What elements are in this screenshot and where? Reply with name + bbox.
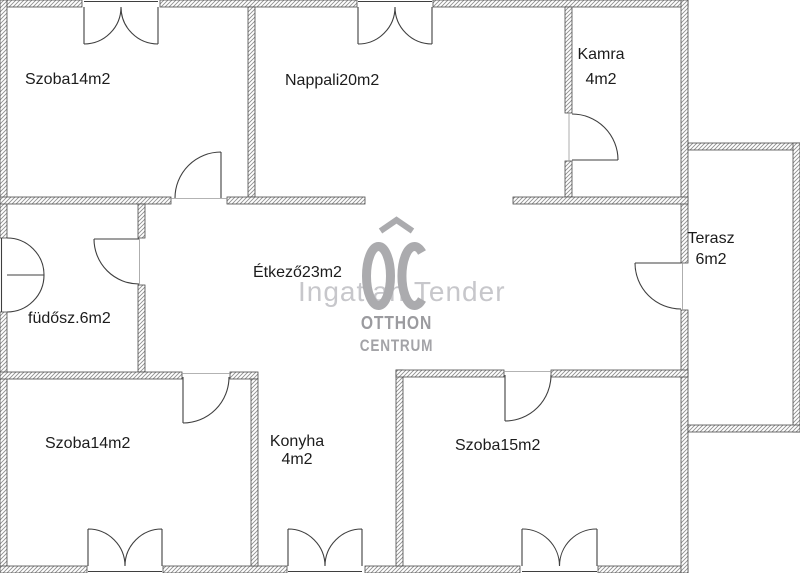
room-label-szoba-bottom-left: Szoba14m2 — [45, 434, 130, 454]
room-label-szoba-top-left: Szoba14m2 — [25, 70, 110, 90]
window-szoba-bottom-left — [88, 529, 162, 572]
wall — [251, 379, 258, 566]
wall — [396, 370, 504, 377]
floorplan: Ingatlan Tender OTTHON CENTRUM — [0, 0, 800, 573]
logo-letter-o-icon — [367, 247, 391, 306]
wall — [598, 566, 688, 573]
otthon-centrum-logo-icon — [367, 220, 423, 306]
wall — [688, 143, 800, 150]
wall — [433, 0, 688, 7]
room-label-nappali: Nappali20m2 — [285, 71, 379, 91]
wall — [0, 372, 182, 379]
logo-roof-icon — [381, 220, 413, 231]
wall — [163, 566, 287, 573]
window-szoba-top-left — [84, 2, 158, 45]
room-label-konyha-name: Konyha — [251, 433, 343, 451]
room-label-terasz: Terasz 6m2 — [666, 228, 756, 270]
door-szoba-bottom-left — [183, 377, 229, 423]
wall — [227, 197, 365, 204]
room-label-konyha-area: 4m2 — [251, 451, 343, 469]
window-furdoszoba — [2, 238, 45, 312]
wall — [160, 0, 357, 7]
wall — [688, 425, 800, 432]
room-label-terasz-area: 6m2 — [666, 249, 756, 270]
door-szoba-top-left — [175, 152, 221, 198]
room-label-terasz-name: Terasz — [666, 228, 756, 249]
wall — [565, 161, 572, 197]
wall — [0, 0, 82, 7]
door-furdoszoba — [94, 239, 139, 284]
logo-letter-c-icon — [402, 247, 422, 306]
room-label-szoba-bottom-right: Szoba15m2 — [455, 436, 540, 456]
wall — [681, 0, 688, 263]
room-label-kamra: Kamra 4m2 — [556, 42, 646, 92]
room-label-etkezo: Étkező23m2 — [253, 263, 342, 283]
wall — [138, 204, 145, 238]
wall — [0, 566, 87, 573]
window-nappali — [358, 2, 432, 45]
wall — [138, 285, 145, 372]
wall — [513, 197, 688, 204]
wall — [248, 7, 255, 197]
wall — [396, 370, 403, 566]
door-szoba-bottom-right — [505, 375, 551, 421]
door-kamra — [572, 114, 618, 160]
wall — [793, 143, 800, 432]
window-szoba-bottom-right — [522, 529, 597, 572]
room-label-kamra-area: 4m2 — [556, 67, 646, 92]
window-konyha — [288, 529, 362, 572]
wall — [365, 566, 520, 573]
wall — [230, 372, 258, 379]
wall — [0, 312, 7, 573]
wall — [0, 197, 171, 204]
room-label-furdoszoba: füdősz.6m2 — [28, 309, 111, 329]
room-label-kamra-name: Kamra — [556, 42, 646, 67]
wall — [551, 370, 688, 377]
wall — [681, 310, 688, 573]
room-label-konyha: Konyha 4m2 — [251, 433, 343, 469]
floorplan-drawing — [0, 0, 800, 573]
